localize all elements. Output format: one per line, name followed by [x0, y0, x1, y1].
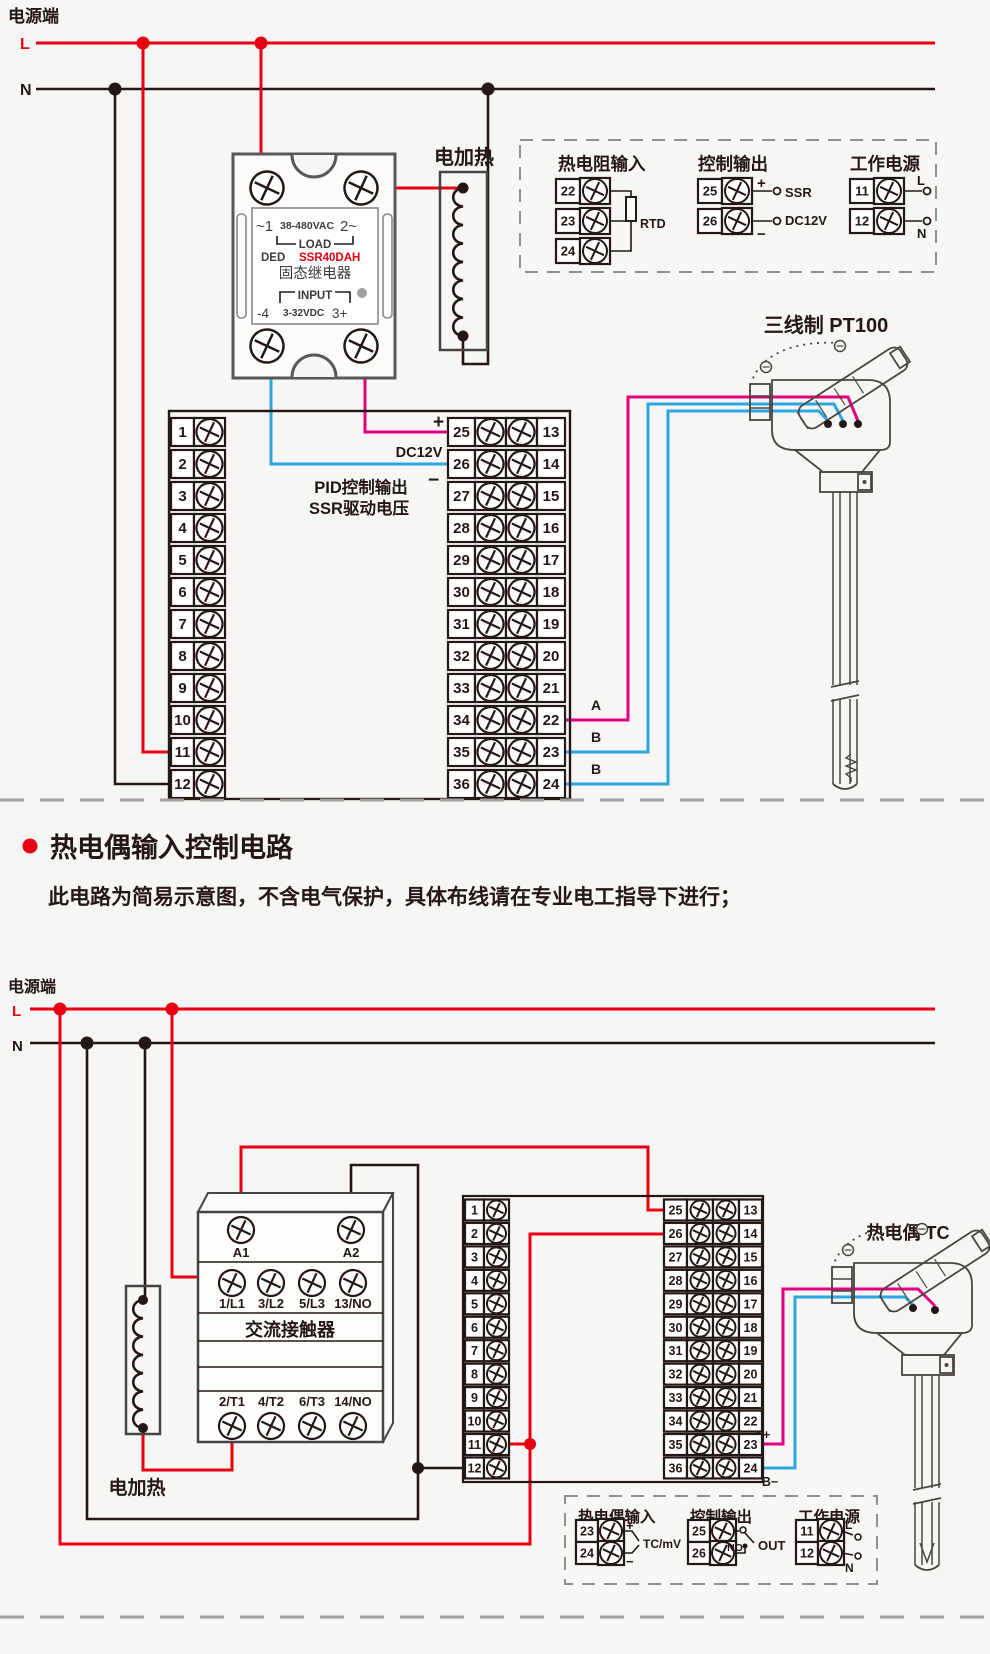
- heater-coil-icon: [453, 188, 463, 336]
- terminal-number: 23: [580, 1525, 594, 1539]
- terminal-number: 29: [669, 1297, 683, 1311]
- n-label: N: [917, 226, 926, 241]
- n-label: N: [845, 1561, 854, 1575]
- terminal-number: 6: [178, 584, 186, 601]
- wire-term24-to-pt100: [532, 411, 828, 784]
- ssr-terminal2: 2~: [340, 218, 357, 235]
- terminal-number: 25: [669, 1204, 683, 1218]
- power-terminal-label: 电源端: [8, 977, 56, 996]
- terminal-number: 5: [178, 552, 186, 569]
- ssr-terminal1: ~1: [256, 218, 273, 235]
- terminal-number: 1: [178, 424, 186, 441]
- terminal-number: 30: [453, 584, 470, 601]
- terminal-number: 24: [561, 244, 576, 259]
- terminal-number: 17: [543, 552, 560, 569]
- terminal-number: 30: [669, 1321, 683, 1335]
- terminal-number: 12: [468, 1461, 482, 1475]
- terminal-number: 10: [468, 1415, 482, 1429]
- terminal-number: 15: [744, 1250, 758, 1264]
- junction-dot: [524, 1438, 536, 1450]
- terminal-number: 11: [855, 184, 869, 199]
- terminal-number: 26: [453, 456, 470, 473]
- contact-label: 2/T1: [219, 1394, 245, 1409]
- ssr-voltage: 38-480VAC: [280, 220, 335, 232]
- terminal-number: 32: [453, 648, 470, 665]
- line-l-label: L: [12, 1003, 21, 1020]
- terminal-number: 26: [692, 1547, 706, 1561]
- section-title: 热电偶输入控制电路: [50, 832, 294, 863]
- wire-a-label: A: [591, 697, 601, 713]
- ssr-ded-label: DED: [261, 252, 285, 264]
- rtd-resistor-icon: [626, 197, 636, 221]
- wire-term22-to-pt100: [532, 397, 858, 720]
- terminal-number: 16: [744, 1274, 758, 1288]
- wiring-diagram-page: 电源端 L N ~1 38-480VAC 2~: [0, 0, 990, 1654]
- terminal-number: 8: [178, 648, 186, 665]
- ssr-output-node-icon: [774, 188, 781, 195]
- dc12v-label: DC12V: [785, 213, 827, 228]
- terminal-number: 5: [471, 1297, 478, 1311]
- b-minus-label: B−: [762, 1475, 778, 1489]
- minus-label: −: [428, 470, 439, 491]
- terminal-number: 23: [744, 1438, 758, 1452]
- terminal-number: 33: [453, 680, 470, 697]
- heater-coil-icon: [133, 1300, 143, 1428]
- bottom-circuit: 电源端 L N A+ B− A: [8, 977, 990, 1584]
- terminal-number: 24: [744, 1461, 758, 1475]
- control-output-title: 控制输出: [698, 154, 768, 174]
- minus-label: −: [626, 1554, 634, 1569]
- line-l-label: L: [20, 36, 30, 53]
- terminal-number: 11: [175, 744, 191, 761]
- terminal-number: 22: [561, 184, 575, 199]
- contact-label: 5/L3: [299, 1296, 325, 1311]
- terminal-number: 19: [744, 1344, 758, 1358]
- ssr-name-label: 固态继电器: [279, 265, 352, 282]
- terminal-number: 11: [468, 1438, 481, 1452]
- terminal-number: 36: [453, 776, 470, 793]
- ssr-input-voltage: 3-32VDC: [283, 308, 324, 319]
- terminal-block-bottom: 1251322614327154281652917630187311983220…: [463, 1196, 763, 1482]
- terminal-number: 14: [543, 456, 560, 473]
- wire-b1-label: B: [591, 729, 601, 745]
- tc-mv-label: TC/mV: [643, 1537, 681, 1551]
- terminal-number: 22: [543, 712, 560, 729]
- terminal-number: 1: [471, 1204, 478, 1218]
- ssr-model-label: SSR40DAH: [299, 252, 360, 264]
- contact-label: 1/L1: [219, 1296, 245, 1311]
- minus-label: −: [757, 226, 766, 243]
- contact-label: 6/T3: [299, 1394, 325, 1409]
- terminal-number: 6: [471, 1321, 478, 1335]
- top-circuit: 电源端 L N ~1 38-480VAC 2~: [8, 6, 936, 801]
- terminal-number: 21: [744, 1391, 758, 1405]
- terminal-number: 23: [561, 214, 575, 229]
- bullet-icon: [23, 839, 38, 854]
- ac-contactor: A1 A2 1/L1 3/L2 5/L3 13/NO 交流接触器 2/T1 4/…: [198, 1193, 393, 1443]
- terminal-number: 18: [543, 584, 560, 601]
- dc12v-label: DC12V: [396, 445, 443, 461]
- working-power-title: 工作电源: [850, 154, 920, 174]
- terminal-number: 2: [178, 456, 186, 473]
- terminal-number: 24: [543, 776, 560, 793]
- terminal-number: 25: [453, 424, 470, 441]
- l-node-icon: [855, 1534, 861, 1540]
- terminal-number: 24: [580, 1547, 594, 1561]
- wire-term23-to-pt100: [532, 404, 843, 752]
- junction-dot: [255, 37, 268, 50]
- junction-dot: [54, 1003, 67, 1016]
- a1-label: A1: [233, 1245, 250, 1260]
- terminal-number: 9: [471, 1391, 478, 1405]
- terminal-number: 15: [543, 488, 560, 505]
- ssr-relay: ~1 38-480VAC 2~ LOAD DED SSR40DAH 固态继电器 …: [233, 154, 395, 378]
- heater-bottom: 电加热: [108, 1286, 165, 1499]
- dc12v-node-icon: [774, 218, 781, 225]
- contact-label: 4/T2: [258, 1394, 284, 1409]
- terminal-number: 18: [744, 1321, 758, 1335]
- pt100-sensor-icon: [750, 341, 912, 790]
- contact-label: 3/L2: [258, 1296, 284, 1311]
- ssr-minus4: -4: [257, 306, 269, 321]
- power-terminal-label: 电源端: [8, 6, 59, 26]
- line-n-label: N: [12, 1038, 23, 1055]
- ssr-led-icon: [357, 288, 367, 298]
- terminal-number: 14: [744, 1227, 758, 1241]
- contact-label: 13/NO: [334, 1296, 372, 1311]
- terminal-number: 22: [744, 1415, 758, 1429]
- pid-output-label: PID控制输出: [314, 477, 408, 497]
- out-label: OUT: [758, 1538, 786, 1553]
- wire-term23-to-tc: [735, 1289, 935, 1444]
- terminal-number: 28: [453, 520, 470, 537]
- rtd-label: RTD: [640, 217, 666, 231]
- top-inset: 热电阻输入 控制输出 工作电源 22232425261112 RTD + SSR…: [520, 140, 936, 272]
- terminal-block-top: 1251322614327154281652917630187311983220…: [169, 411, 570, 801]
- terminal-number: 26: [703, 214, 717, 229]
- terminal-number: 21: [543, 680, 560, 697]
- terminal-number: 20: [543, 648, 560, 665]
- terminal-number: 13: [744, 1204, 758, 1218]
- ssr-input-label: INPUT: [298, 290, 333, 302]
- terminal-number: 3: [178, 488, 186, 505]
- terminal-number: 9: [178, 680, 186, 697]
- terminal-number: 35: [669, 1438, 683, 1452]
- l-label: L: [845, 1518, 852, 1532]
- terminal-number: 8: [471, 1368, 478, 1382]
- terminal-number: 27: [453, 488, 470, 505]
- terminal-number: 25: [703, 184, 717, 199]
- junction-dot: [137, 37, 150, 50]
- terminal-number: 3: [471, 1250, 478, 1264]
- terminal-number: 31: [453, 616, 470, 633]
- terminal-number: 4: [471, 1274, 478, 1288]
- junction-dot: [166, 1003, 179, 1016]
- a2-label: A2: [343, 1245, 360, 1260]
- terminal-number: 7: [178, 616, 186, 633]
- terminal-number: 29: [453, 552, 470, 569]
- terminal-number: 26: [669, 1227, 683, 1241]
- terminal-number: 16: [543, 520, 560, 537]
- n-node-icon: [924, 218, 931, 225]
- terminal-number: 34: [453, 712, 470, 729]
- terminal-number: 19: [543, 616, 560, 633]
- junction-dot: [482, 83, 495, 96]
- terminal-number: 36: [669, 1461, 683, 1475]
- heater-label: 电加热: [434, 146, 494, 169]
- ssr-plus3: 3+: [332, 306, 348, 321]
- contactor-name: 交流接触器: [245, 1319, 336, 1340]
- plus-label: +: [433, 412, 444, 433]
- terminal-number: 31: [669, 1344, 683, 1358]
- section-subtitle: 此电路为简易示意图，不含电气保护，具体布线请在专业电工指导下进行；: [48, 885, 741, 909]
- terminal-number: 28: [669, 1274, 683, 1288]
- terminal-number: 35: [453, 744, 470, 761]
- contact-label: 14/NO: [334, 1394, 372, 1409]
- l-node-icon: [924, 188, 931, 195]
- terminal-number: 20: [744, 1368, 758, 1382]
- terminal-number: 33: [669, 1391, 683, 1405]
- heater-top: 电加热: [434, 146, 494, 350]
- terminal-number: 7: [471, 1344, 478, 1358]
- terminal-number: 17: [744, 1297, 758, 1311]
- terminal-number: 27: [669, 1250, 683, 1264]
- junction-dot: [139, 1037, 152, 1050]
- terminal-number: 12: [800, 1547, 814, 1561]
- junction-dot: [109, 83, 122, 96]
- pt100-label: 三线制 PT100: [764, 313, 888, 337]
- terminal-number: 23: [543, 744, 560, 761]
- ssr-drive-label: SSR驱动电压: [309, 498, 409, 518]
- plus-label: +: [757, 175, 766, 192]
- terminal-number: 11: [800, 1525, 813, 1539]
- terminal-number: 12: [174, 776, 191, 793]
- l-label: L: [917, 173, 925, 188]
- heater-label: 电加热: [108, 1476, 165, 1499]
- rtd-input-title: 热电阻输入: [558, 154, 646, 174]
- wire-b2-label: B: [591, 761, 601, 777]
- bottom-inset: 热电偶输入 控制输出 工作电源 232425261112 + TC/mV − N…: [565, 1496, 877, 1584]
- terminal-number: 10: [174, 712, 191, 729]
- terminal-number: 13: [543, 424, 560, 441]
- no-contact-icon: [740, 1527, 746, 1533]
- n-node-icon: [855, 1553, 861, 1559]
- terminal-number: 25: [692, 1525, 706, 1539]
- wiring-diagram: 电源端 L N ~1 38-480VAC 2~: [0, 0, 990, 1654]
- terminal-number: 12: [855, 214, 869, 229]
- ssr-output-label: SSR: [785, 185, 812, 200]
- ssr-load-label: LOAD: [299, 239, 332, 251]
- line-n-label: N: [20, 82, 32, 99]
- terminal-number: 34: [669, 1415, 683, 1429]
- terminal-number: 2: [471, 1227, 478, 1241]
- terminal-number: 4: [178, 520, 187, 537]
- wire-heater-to-n: [463, 89, 488, 364]
- terminal-number: 32: [669, 1368, 683, 1382]
- junction-dot: [412, 1462, 424, 1474]
- junction-dot: [81, 1037, 94, 1050]
